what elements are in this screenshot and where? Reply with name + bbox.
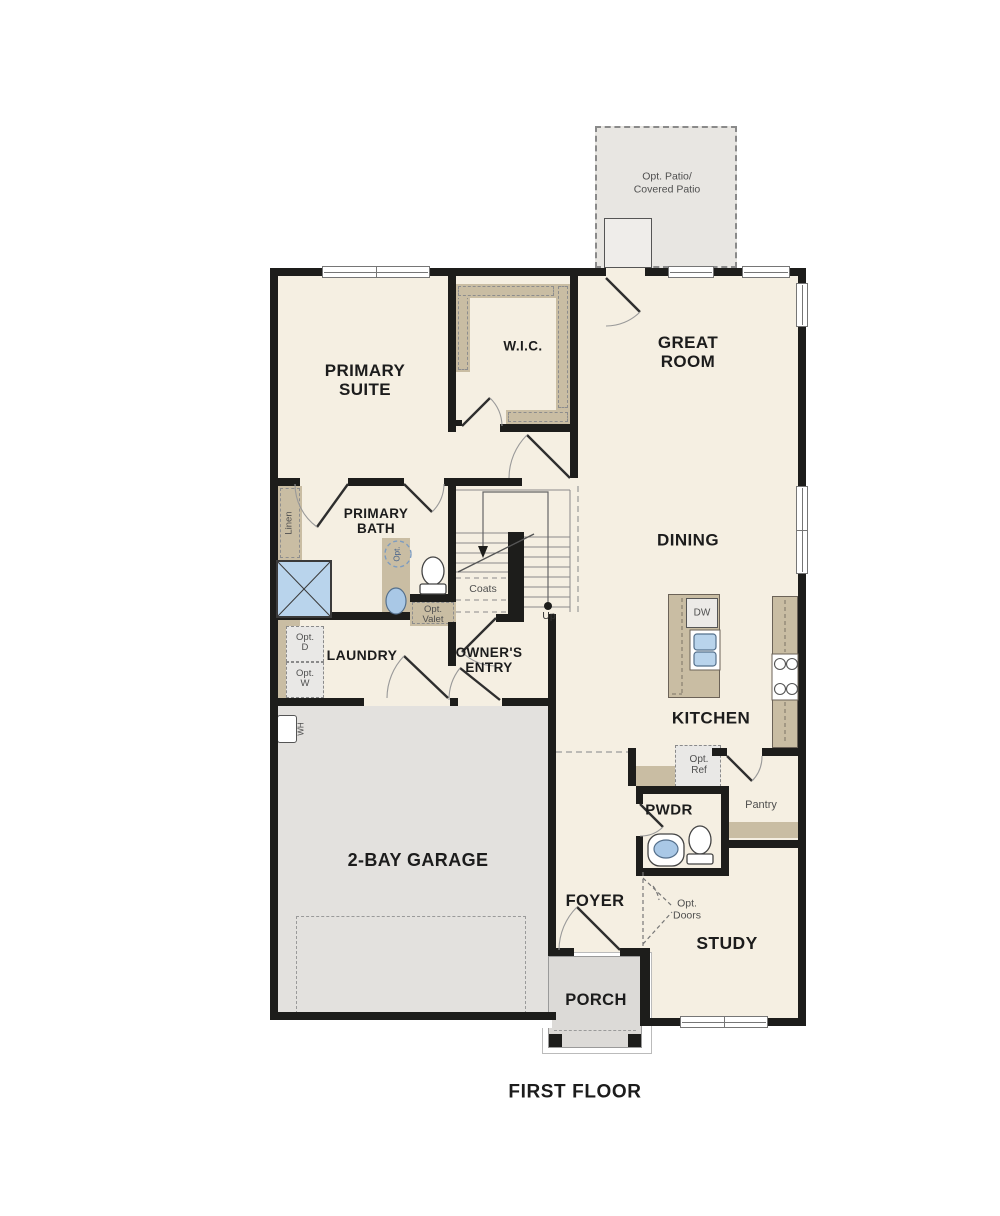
room-label-great-room: GREATROOM [658, 333, 718, 371]
opt-doors-study [643, 872, 672, 948]
plan-linework [0, 0, 1000, 1216]
bath-sink [386, 588, 406, 614]
door-wic [462, 398, 502, 426]
island-sink [690, 630, 720, 670]
pwdr-sink [648, 834, 684, 866]
door-primary-suite-hall [509, 435, 570, 478]
label-linen: Linen [285, 511, 296, 534]
room-label-kitchen: KITCHEN [672, 708, 750, 727]
label-patio: Opt. Patio/Covered Patio [634, 170, 701, 195]
door-front-entry [559, 907, 620, 950]
first-floor-plan: PRIMARYSUITE W.I.C. GREATROOM DINING KIT… [0, 0, 1000, 1216]
pwdr-toilet [687, 826, 713, 864]
label-opt-doors: Opt.Doors [673, 898, 701, 921]
label-opt-dryer: Opt.D [296, 633, 314, 653]
room-label-primary-suite: PRIMARYSUITE [325, 361, 406, 399]
room-label-owners-entry: OWNER'SENTRY [456, 645, 523, 675]
label-dishwasher: DW [694, 607, 711, 618]
room-label-garage: 2-BAY GARAGE [348, 850, 489, 870]
door-pantry [727, 756, 762, 781]
label-water-heater: WH [298, 722, 307, 735]
plan-title: FIRST FLOOR [508, 1081, 641, 1102]
room-label-porch: PORCH [565, 991, 627, 1009]
room-label-dining: DINING [657, 530, 719, 549]
label-opt-fridge: Opt.Ref [690, 754, 709, 776]
room-label-laundry: LAUNDRY [327, 648, 398, 664]
ceiling-break-lines [556, 486, 628, 752]
room-label-pwdr: PWDR [645, 803, 692, 820]
room-label-wic: W.I.C. [503, 338, 542, 353]
label-coats: Coats [469, 584, 496, 596]
room-label-foyer: FOYER [566, 892, 625, 910]
door-greatroom-patio [606, 278, 640, 326]
bath-toilet [420, 557, 446, 594]
label-pantry: Pantry [745, 799, 777, 811]
label-up: Up [542, 611, 555, 623]
label-opt-valet: Opt.Valet [423, 605, 444, 625]
island-dashed-edge [672, 598, 682, 694]
door-primary-bath-right [404, 484, 444, 512]
door-primary-bath-left [295, 484, 348, 527]
label-opt-washer: Opt.W [296, 669, 314, 689]
room-label-study: STUDY [696, 934, 757, 954]
room-label-primary-bath: PRIMARYBATH [344, 506, 409, 536]
label-opt-vanity: Opt. [394, 546, 403, 561]
shower [277, 561, 331, 617]
cooktop [772, 654, 798, 700]
